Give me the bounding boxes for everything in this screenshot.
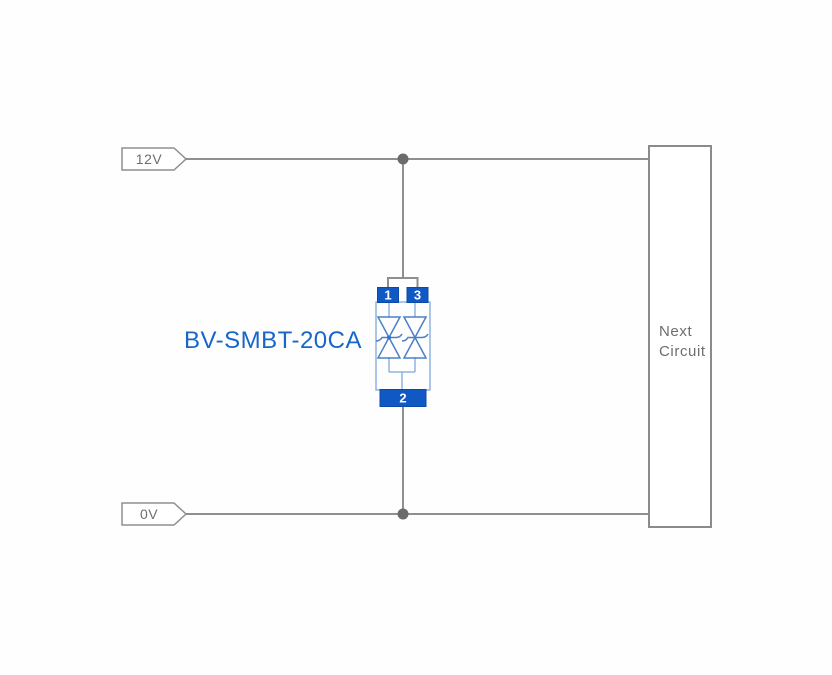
pin-2-label: 2 xyxy=(399,391,406,406)
pin-2: 2 xyxy=(380,390,426,407)
next-circuit-label-line2: Circuit xyxy=(659,343,706,360)
schematic-canvas: 12V 0V BV-SMBT-20CA xyxy=(0,0,832,675)
diode-right xyxy=(402,317,428,358)
diode-left-center-dot xyxy=(387,336,391,340)
diode-left-top-triangle xyxy=(378,317,400,338)
component-label: BV-SMBT-20CA xyxy=(184,327,362,354)
flag-label-12v: 12V xyxy=(136,151,163,167)
diode-left xyxy=(376,317,402,358)
diode-right-bottom-triangle xyxy=(404,338,426,359)
diode-right-top-triangle xyxy=(404,317,426,338)
junction-dot-top xyxy=(398,154,409,165)
flag-label-0v: 0V xyxy=(140,506,158,522)
pin-3-label: 3 xyxy=(414,288,421,303)
tvs-component: 1 3 2 xyxy=(376,288,430,407)
pin-1-label: 1 xyxy=(384,288,391,303)
junction-dot-bottom xyxy=(398,509,409,520)
next-circuit-label-line1: Next xyxy=(659,323,692,340)
circuit-diagram: 12V 0V BV-SMBT-20CA xyxy=(0,0,832,675)
pin-3: 3 xyxy=(407,288,428,303)
pin-1: 1 xyxy=(378,288,399,303)
rail-flag-0v: 0V xyxy=(122,503,186,525)
rail-flag-12v: 12V xyxy=(122,148,186,170)
diode-left-bottom-triangle xyxy=(378,338,400,359)
diode-right-zener-bar xyxy=(402,334,428,341)
next-circuit-block: Next Circuit xyxy=(649,146,711,527)
